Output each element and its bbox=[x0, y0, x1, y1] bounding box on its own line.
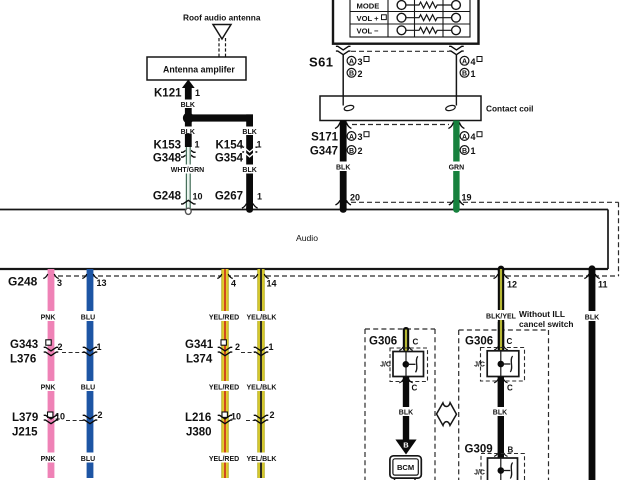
svg-text:BLK/YEL: BLK/YEL bbox=[486, 314, 517, 321]
svg-text:PNK: PNK bbox=[41, 456, 56, 463]
svg-text:2: 2 bbox=[98, 410, 103, 420]
svg-text:4: 4 bbox=[231, 279, 236, 289]
svg-text:C: C bbox=[507, 337, 513, 346]
svg-text:4: 4 bbox=[471, 57, 476, 67]
svg-text:G248: G248 bbox=[8, 275, 38, 289]
svg-text:3: 3 bbox=[358, 57, 363, 67]
svg-text:BCM: BCM bbox=[397, 463, 414, 472]
svg-text:A: A bbox=[349, 59, 354, 66]
svg-text:BLU: BLU bbox=[81, 456, 95, 463]
svg-text:L216: L216 bbox=[185, 412, 211, 424]
svg-text:G343: G343 bbox=[10, 339, 38, 351]
svg-text:20: 20 bbox=[350, 193, 360, 203]
svg-text:A: A bbox=[462, 59, 467, 66]
svg-text:G267: G267 bbox=[215, 191, 243, 203]
svg-text:1: 1 bbox=[257, 192, 262, 202]
svg-text:19: 19 bbox=[462, 193, 472, 203]
svg-text:GRN: GRN bbox=[449, 165, 465, 172]
svg-text:J380: J380 bbox=[186, 427, 212, 439]
svg-text:YEL/BLK: YEL/BLK bbox=[247, 456, 277, 463]
svg-text:1: 1 bbox=[97, 342, 102, 352]
svg-text:10: 10 bbox=[231, 412, 241, 422]
svg-text:BLK: BLK bbox=[336, 165, 350, 172]
svg-text:BLK: BLK bbox=[585, 315, 599, 322]
svg-text:L379: L379 bbox=[12, 412, 38, 424]
svg-text:A: A bbox=[349, 134, 354, 141]
svg-text:YEL/RED: YEL/RED bbox=[209, 315, 239, 322]
svg-text:J/C: J/C bbox=[380, 362, 391, 369]
svg-text:C: C bbox=[412, 384, 418, 393]
svg-text:G341: G341 bbox=[185, 339, 214, 351]
svg-text:1: 1 bbox=[269, 342, 274, 352]
svg-text:WHT/GRN: WHT/GRN bbox=[171, 167, 204, 174]
svg-text:J215: J215 bbox=[12, 427, 38, 439]
svg-text:14: 14 bbox=[267, 279, 277, 289]
svg-text:2: 2 bbox=[358, 146, 363, 156]
svg-text:G306: G306 bbox=[369, 336, 397, 348]
svg-text:L374: L374 bbox=[186, 354, 213, 366]
svg-text:B: B bbox=[349, 71, 354, 78]
svg-text:YEL/RED: YEL/RED bbox=[209, 456, 239, 463]
svg-text:2: 2 bbox=[235, 342, 240, 352]
svg-text:BLK: BLK bbox=[399, 410, 413, 417]
svg-text:Roof audio antenna: Roof audio antenna bbox=[183, 13, 261, 23]
svg-text:1: 1 bbox=[257, 140, 262, 150]
svg-text:VOL +: VOL + bbox=[357, 14, 380, 23]
svg-text:G354: G354 bbox=[215, 153, 244, 165]
svg-text:B: B bbox=[462, 71, 467, 78]
svg-text:Contact coil: Contact coil bbox=[486, 104, 533, 114]
svg-text:YEL/RED: YEL/RED bbox=[209, 385, 239, 392]
svg-text:cancel switch: cancel switch bbox=[519, 319, 573, 329]
svg-text:BLK: BLK bbox=[181, 102, 195, 109]
svg-text:C: C bbox=[507, 384, 513, 393]
svg-text:2: 2 bbox=[270, 410, 275, 420]
svg-text:G248: G248 bbox=[153, 191, 182, 203]
svg-text:4: 4 bbox=[471, 132, 476, 142]
svg-text:YEL/BLK: YEL/BLK bbox=[247, 385, 277, 392]
svg-text:3: 3 bbox=[358, 132, 363, 142]
svg-text:BLU: BLU bbox=[81, 385, 95, 392]
svg-text:K153: K153 bbox=[154, 140, 182, 152]
svg-text:J/C: J/C bbox=[474, 470, 485, 477]
svg-text:G348: G348 bbox=[153, 153, 182, 165]
svg-text:3: 3 bbox=[57, 278, 62, 288]
svg-text:1: 1 bbox=[471, 146, 476, 156]
svg-text:11: 11 bbox=[598, 280, 608, 290]
svg-text:B: B bbox=[403, 441, 409, 450]
svg-text:2: 2 bbox=[358, 69, 363, 79]
svg-text:B: B bbox=[349, 148, 354, 155]
svg-text:BLK: BLK bbox=[493, 410, 507, 417]
svg-text:Audio: Audio bbox=[296, 233, 318, 243]
svg-text:K154: K154 bbox=[216, 140, 244, 152]
svg-text:PNK: PNK bbox=[41, 385, 56, 392]
svg-text:BLK: BLK bbox=[242, 129, 256, 136]
svg-text:13: 13 bbox=[97, 278, 107, 288]
svg-text:G306: G306 bbox=[465, 336, 493, 348]
svg-text:K121: K121 bbox=[154, 88, 182, 100]
svg-text:MODE: MODE bbox=[357, 2, 380, 11]
svg-text:Without ILL: Without ILL bbox=[519, 309, 565, 319]
svg-text:YEL/BLK: YEL/BLK bbox=[247, 315, 277, 322]
svg-text:J/C: J/C bbox=[474, 362, 485, 369]
svg-text:C: C bbox=[413, 338, 419, 347]
svg-text:VOL −: VOL − bbox=[357, 27, 380, 36]
svg-text:BLK: BLK bbox=[242, 167, 256, 174]
svg-text:G347: G347 bbox=[310, 146, 338, 158]
svg-text:Antenna amplifer: Antenna amplifer bbox=[163, 65, 235, 75]
svg-text:A: A bbox=[462, 134, 467, 141]
svg-text:1: 1 bbox=[195, 140, 200, 150]
svg-text:1: 1 bbox=[195, 88, 200, 98]
svg-text:10: 10 bbox=[193, 192, 203, 202]
svg-text:PNK: PNK bbox=[41, 315, 56, 322]
svg-text:L376: L376 bbox=[10, 354, 36, 366]
svg-text:1: 1 bbox=[471, 69, 476, 79]
svg-text:BLU: BLU bbox=[81, 315, 95, 322]
svg-text:B: B bbox=[462, 148, 467, 155]
svg-text:S171: S171 bbox=[311, 132, 338, 144]
svg-text:S61: S61 bbox=[309, 55, 333, 70]
svg-text:12: 12 bbox=[507, 280, 517, 290]
